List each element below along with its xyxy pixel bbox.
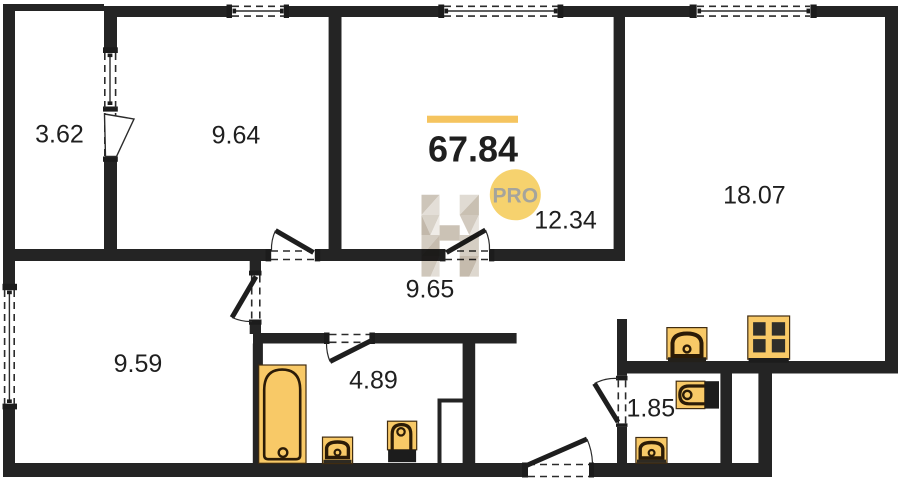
- svg-text:12.34: 12.34: [534, 207, 597, 235]
- svg-text:18.07: 18.07: [723, 182, 786, 210]
- svg-text:67.84: 67.84: [428, 129, 518, 170]
- svg-text:4.89: 4.89: [349, 367, 398, 395]
- svg-text:9.59: 9.59: [114, 350, 163, 378]
- svg-text:9.64: 9.64: [212, 122, 261, 150]
- svg-text:PRO: PRO: [493, 185, 539, 208]
- svg-text:9.65: 9.65: [406, 276, 455, 304]
- svg-text:1.85: 1.85: [626, 395, 675, 423]
- svg-text:3.62: 3.62: [35, 121, 84, 149]
